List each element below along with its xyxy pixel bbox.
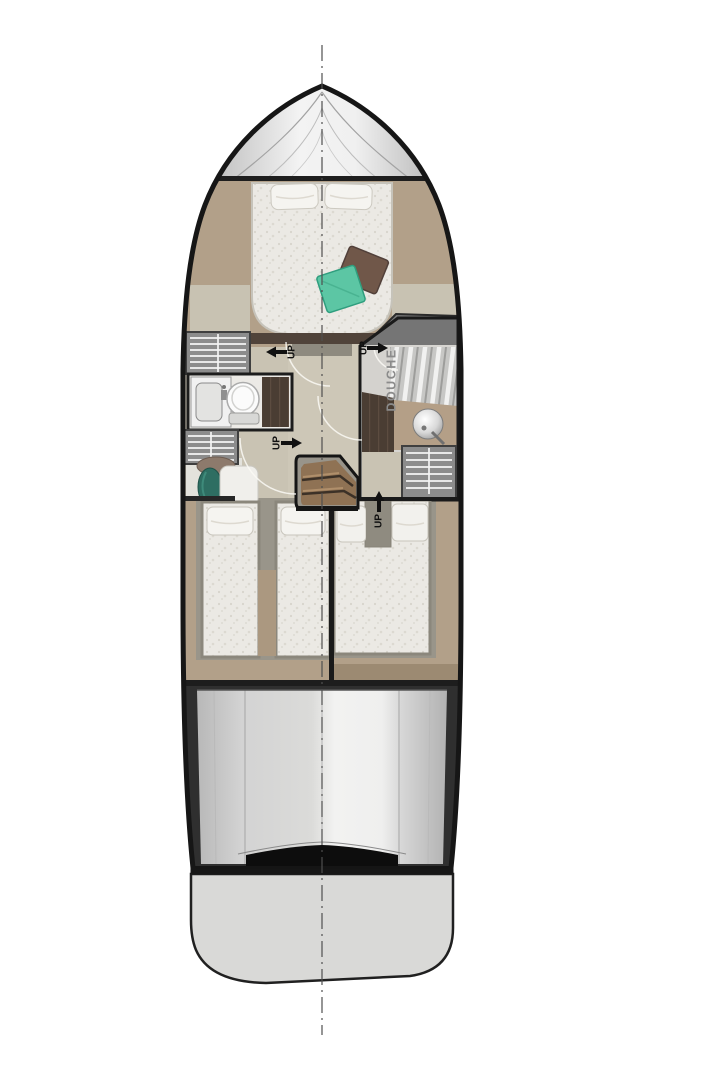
pillow [392,504,428,541]
nightstand [258,570,276,656]
douche-label: DOUCHE [384,348,398,411]
bathroom [188,374,292,430]
up-label-text: UP [359,341,370,355]
cabin-divider-wall [329,498,334,684]
up-label-text: UP [272,436,283,450]
pillow [207,507,253,535]
bed-single-left [202,502,259,657]
pillow [337,506,366,542]
bathroom-dark-wood-floor [262,377,289,427]
deck-hatch [402,446,456,498]
aft-cabin-wood-accent [334,664,458,682]
up-label-text: UP [374,514,385,528]
floor-plan-canvas: UP UP UP UP DOUCHE [0,0,713,1080]
sink [191,377,231,427]
aft-cabin-wall-left [185,496,235,501]
pillow [325,183,373,210]
forward-cabin-floor-right [392,284,456,318]
toilet [227,383,259,425]
up-label-text: UP [287,345,298,359]
aft-cabin-wall-right [358,497,460,501]
boat-floor-plan: UP UP UP UP DOUCHE [0,0,713,1080]
pillow [271,183,319,210]
deck-hatch [186,332,250,374]
pillow [281,507,325,535]
